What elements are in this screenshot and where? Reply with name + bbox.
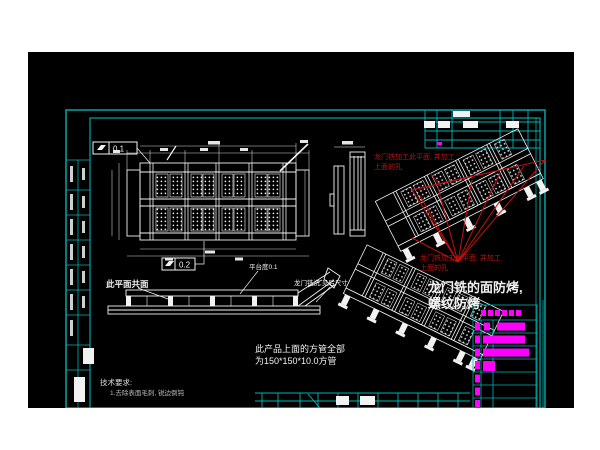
dimension-text-mark	[342, 141, 353, 145]
tech-requirements-item1: 1.去除表面毛刺, 锐边倒钝	[110, 388, 185, 397]
coplanar-note: 此平面共面	[106, 279, 149, 289]
title-block-accent-mark	[437, 142, 442, 145]
flatness-callout: 平台度0.1	[249, 262, 278, 271]
gdt-mid-value: 0.2	[179, 261, 191, 270]
plan-view	[112, 140, 309, 261]
red-note-bottom-line2: 上面的孔	[420, 263, 448, 272]
title-block-top-right	[424, 110, 540, 148]
bottom-title-strip	[255, 393, 470, 408]
cad-screenshot-page: 0.1 0.2	[0, 0, 600, 450]
flatness-symbol-icon	[165, 261, 174, 266]
parts-table	[473, 300, 543, 408]
tech-requirements-title: 技术要求:	[100, 377, 132, 387]
elevation-diagonal-arm	[298, 268, 340, 306]
red-note-top-line1: 龙门铣加工此平面, 并加工	[374, 152, 455, 161]
red-note-top-line2: 上面的孔	[374, 162, 402, 171]
gdt-frame-mid: 0.2	[162, 241, 204, 270]
gdt-frame-top: 0.1	[93, 142, 150, 163]
gantry-size-note: 龙门铣洗,见后尺寸	[294, 278, 348, 287]
gdt-top-value: 0.1	[113, 145, 125, 154]
tube-note-line2: 为150*150*10.0方管	[255, 355, 337, 366]
perforated-panels	[156, 174, 280, 231]
iso-view-marked	[375, 129, 549, 263]
side-view	[330, 141, 365, 236]
dimension-text-marks	[113, 140, 308, 261]
flatness-symbol-icon	[97, 145, 106, 150]
elevation-view	[108, 268, 340, 314]
red-note-bottom-line1: 龙门铣加工此平面, 并加工	[420, 253, 501, 262]
bottom-strip-text-marks	[336, 396, 375, 405]
tube-note-line1: 此产品上面的方管全部	[255, 343, 345, 354]
milling-note-line2: 螺纹防烤	[428, 296, 480, 311]
title-block-text-marks	[424, 111, 519, 128]
drawing-canvas[interactable]: 0.1 0.2	[28, 52, 574, 408]
plan-dimension-lines	[112, 143, 309, 256]
milling-note-line1: 龙门铣的面防烤,	[428, 280, 523, 295]
